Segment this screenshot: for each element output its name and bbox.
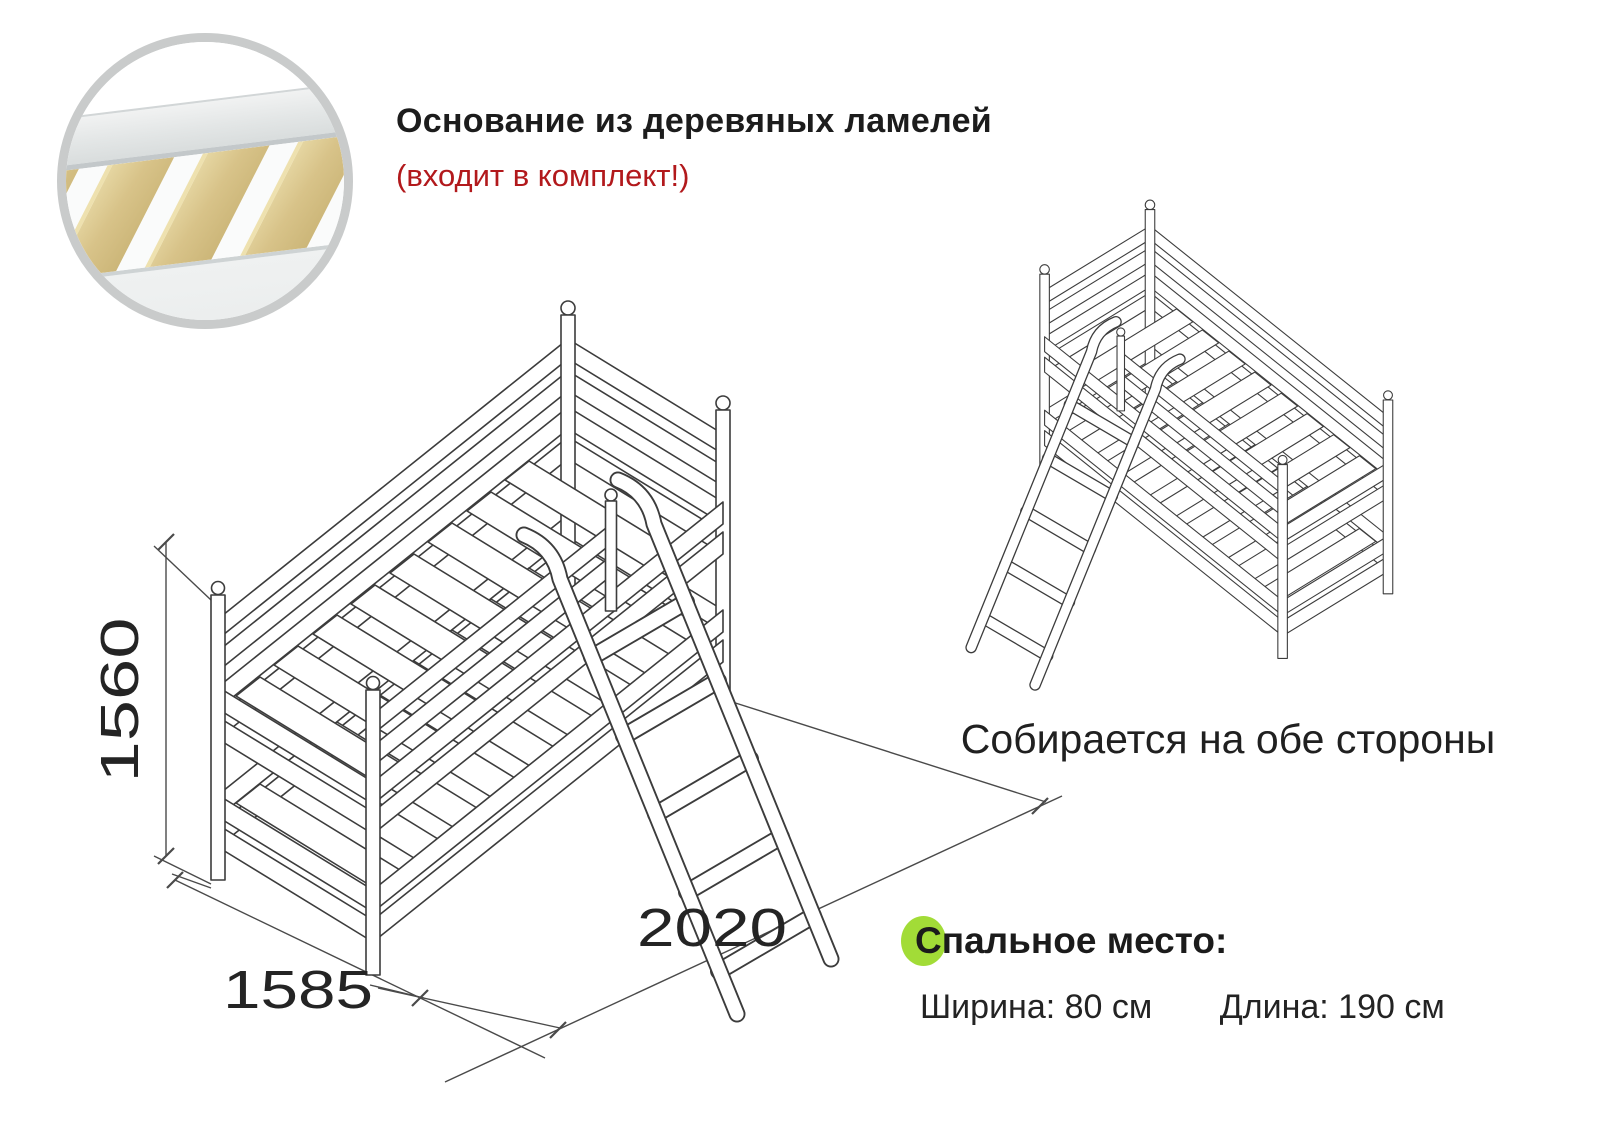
sleeping-area-specs: Ширина: 80 см Длина: 190 см (920, 988, 1445, 1027)
dim-length-label: 2020 (637, 898, 787, 958)
sleeping-length: Длина: 190 см (1220, 988, 1445, 1026)
dim-height-label: 1560 (90, 618, 150, 783)
sleeping-width: Ширина: 80 см (920, 988, 1152, 1026)
page-root: { "header": { "title": "Основание из дер… (0, 0, 1600, 1135)
diagram-canvas: 1560 1585 2020 (0, 0, 1600, 1135)
sleeping-area-title: Спальное место: (915, 920, 1227, 962)
dim-width-label: 1585 (223, 960, 373, 1020)
bunk-bed-right-drawing (971, 200, 1393, 685)
both-sides-caption: Собирается на обе стороны (903, 716, 1553, 763)
